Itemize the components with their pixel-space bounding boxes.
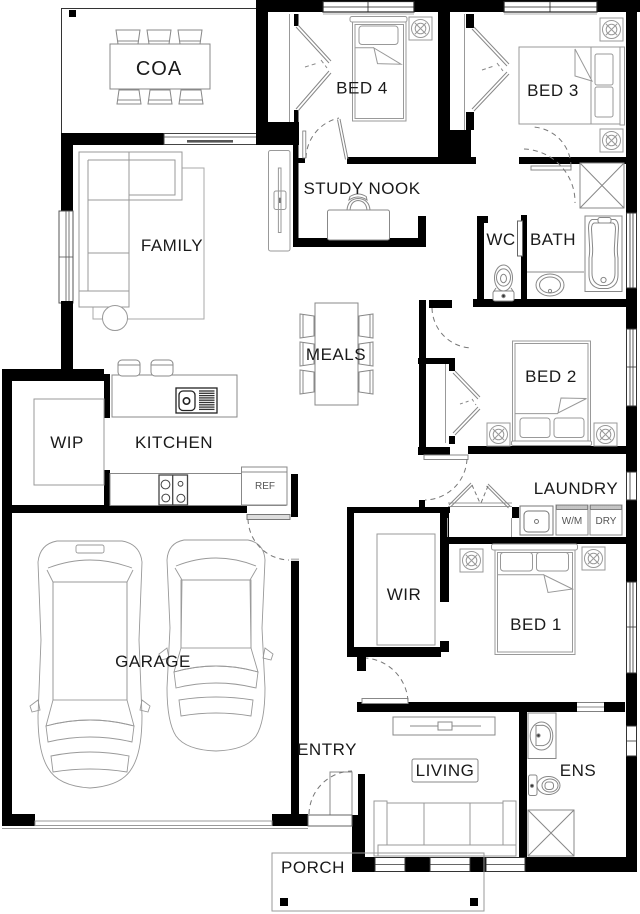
svg-text:STUDY NOOK: STUDY NOOK [303,179,420,198]
svg-text:PORCH: PORCH [281,858,345,877]
svg-text:WIP: WIP [50,433,84,452]
svg-text:COA: COA [136,58,182,80]
svg-text:REF: REF [255,481,275,492]
svg-text:DRY: DRY [596,516,617,527]
svg-text:BED 2: BED 2 [525,367,577,386]
svg-text:LAUNDRY: LAUNDRY [534,479,618,498]
svg-text:BED 4: BED 4 [336,79,388,98]
svg-text:ENS: ENS [560,761,596,780]
svg-text:LIVING: LIVING [416,761,475,780]
svg-text:MEALS: MEALS [306,345,366,364]
svg-text:BATH: BATH [530,230,576,249]
svg-text:W/M: W/M [562,516,583,527]
svg-text:WC: WC [486,230,515,249]
svg-text:BED 1: BED 1 [510,615,562,634]
svg-text:WIR: WIR [387,585,422,604]
svg-text:ENTRY: ENTRY [297,740,357,759]
svg-text:KITCHEN: KITCHEN [135,433,213,452]
svg-text:BED 3: BED 3 [527,81,579,100]
svg-text:FAMILY: FAMILY [141,236,203,255]
svg-text:GARAGE: GARAGE [115,652,191,671]
